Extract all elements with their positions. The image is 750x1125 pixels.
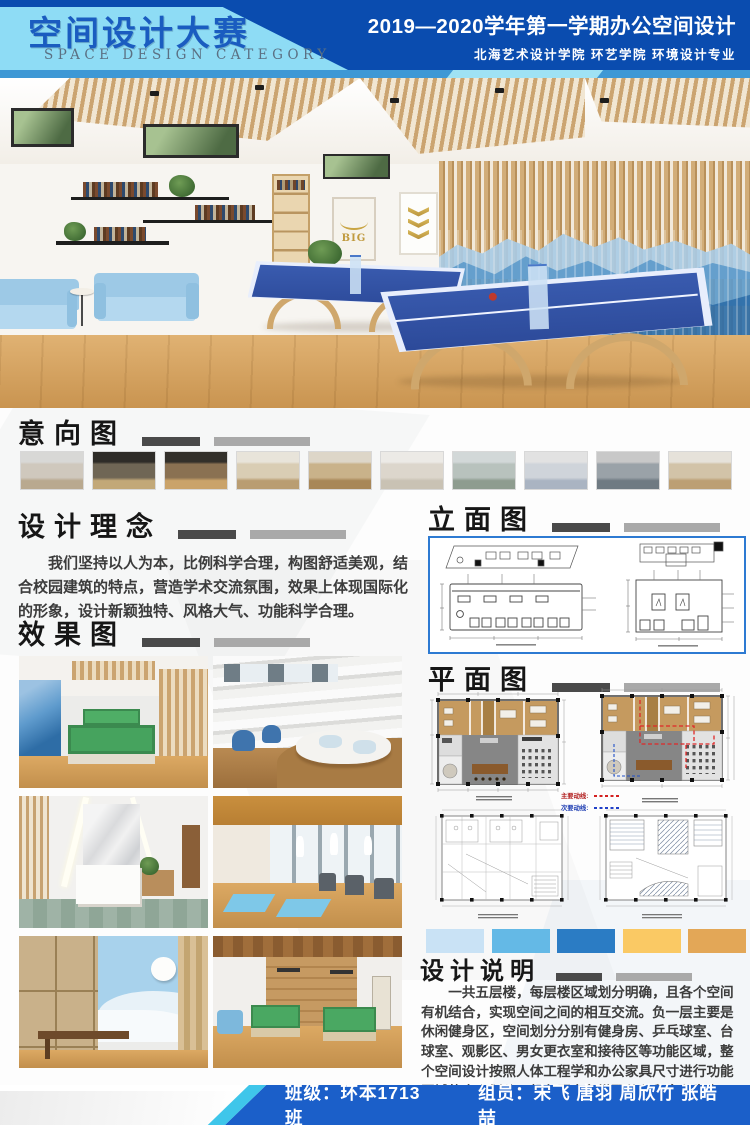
section-title-notes: 设计说明 [420,951,692,986]
shelf-plant [169,175,195,196]
clerestory-window [11,108,73,147]
class-label: 班级：环本1713班 [285,1080,438,1125]
clerestory-window [323,154,391,179]
wall-art-gold-chevrons [399,192,438,255]
render-grid [19,656,402,1068]
legend-secondary-dash [594,807,620,809]
palette-swatch [688,929,746,953]
header-banner: 空间设计大赛 SPACE DESIGN CATEGORY 2019—2020学年… [0,0,750,70]
render-gym [213,796,402,928]
footer-gray-accent [0,1091,240,1125]
paddle [488,292,496,300]
pingpong-net [528,264,549,329]
books-row [83,182,158,197]
course-line: 2019—2020学年第一学期办公空间设计 [368,9,736,39]
section-title-renders: 效果图 [18,613,310,652]
wall-shelf [143,220,293,223]
intent-thumb-strip [20,451,732,490]
footer-bar: 班级：环本1713班 组员：宋飞 唐羽 周欣竹 张皓喆 [0,1085,750,1125]
render-billiards-room [19,656,208,788]
render-reception [19,796,208,928]
books-row [195,205,255,220]
intent-thumb [596,451,660,490]
renders-title: 效果图 [18,613,126,652]
poster-title-en: SPACE DESIGN CATEGORY [44,47,331,63]
script-text-decor [340,214,368,230]
elevation-drawings [430,538,744,652]
intent-thumb [92,451,156,490]
intent-thumb [380,451,444,490]
flow-line-legend: 主要动线: 次要动线: [561,791,620,813]
chevron-icon [408,230,429,239]
members-label: 组员：宋飞 唐羽 周欣竹 张皓喆 [478,1080,735,1125]
elevation-title: 立面图 [428,498,536,537]
concept-title: 设计理念 [18,505,162,544]
legend-secondary-flow: 次要动线: [561,803,620,813]
intent-thumb [20,451,84,490]
ceiling-spotlight [150,91,159,96]
chevron-icon [408,207,429,216]
header-divider-accent [447,70,603,78]
intent-thumb [308,451,372,490]
section-title-elevation: 立面图 [428,498,720,537]
pingpong-table-near [373,267,714,391]
intent-thumb [668,451,732,490]
palette-swatch [426,929,484,953]
wall-shelf [56,241,169,244]
notes-title: 设计说明 [420,951,540,986]
render-locker-room [19,936,208,1068]
pingpong-net [350,255,361,295]
intent-thumb [524,451,588,490]
legend-primary-dash [594,795,620,797]
legend-primary-flow: 主要动线: [561,791,620,801]
header-right-block: 2019—2020学年第一学期办公空间设计 北海艺术设计学院 环艺学院 环境设计… [368,9,736,63]
intent-thumb [164,451,228,490]
hero-ceiling-slats [585,78,750,128]
legend-secondary-label: 次要动线: [561,804,588,813]
ceiling-spotlight [495,88,504,93]
elevation-drawings-box [428,536,746,654]
poster-board: 空间设计大赛 SPACE DESIGN CATEGORY 2019—2020学年… [0,0,750,1125]
side-table [70,288,94,331]
shelf-plant [64,222,87,242]
school-line: 北海艺术设计学院 环艺学院 环境设计专业 [368,44,736,63]
ceiling-spotlight [390,98,399,103]
section-title-concept: 设计理念 [18,505,346,544]
ceiling-spotlight [255,85,264,90]
intent-thumb [236,451,300,490]
palette-strip [426,929,746,953]
intent-thumb [452,451,516,490]
blue-sofa [94,273,199,324]
palette-swatch [623,929,681,953]
clerestory-window [143,124,239,158]
render-billiards-room-2 [213,936,402,1068]
legend-primary-label: 主要动线: [561,792,588,801]
wall-art-text: BIG [342,233,367,244]
section-title-intent: 意向图 [18,412,310,451]
intent-title: 意向图 [18,412,126,451]
wall-shelf [71,197,229,200]
chevron-icon [408,219,429,228]
palette-swatch [492,929,550,953]
ceiling-spotlight [600,98,609,103]
header-divider-strip [0,70,750,78]
blue-sofa [0,279,79,332]
books-row [94,227,147,242]
footer-text: 班级：环本1713班 组员：宋飞 唐羽 周欣竹 张皓喆 [285,1085,735,1125]
render-lounge [213,656,402,788]
hero-render-pingpong-room: BIG [0,78,750,408]
palette-swatch [557,929,615,953]
